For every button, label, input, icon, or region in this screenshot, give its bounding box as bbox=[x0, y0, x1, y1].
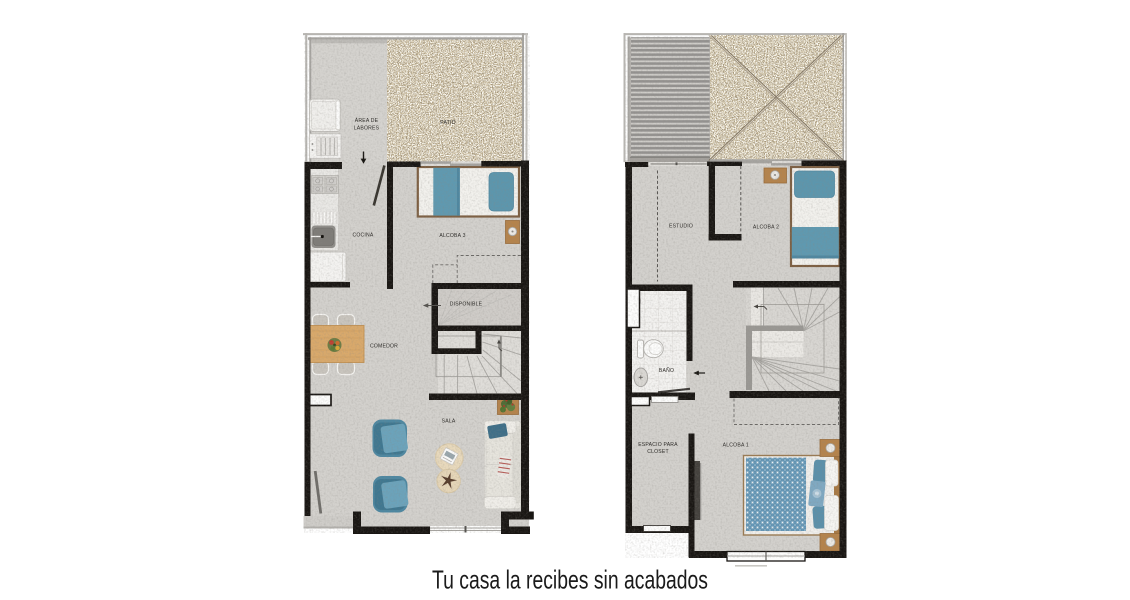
svg-text:Tu casa la recibes sin acabado: Tu casa la recibes sin acabados bbox=[432, 565, 708, 595]
